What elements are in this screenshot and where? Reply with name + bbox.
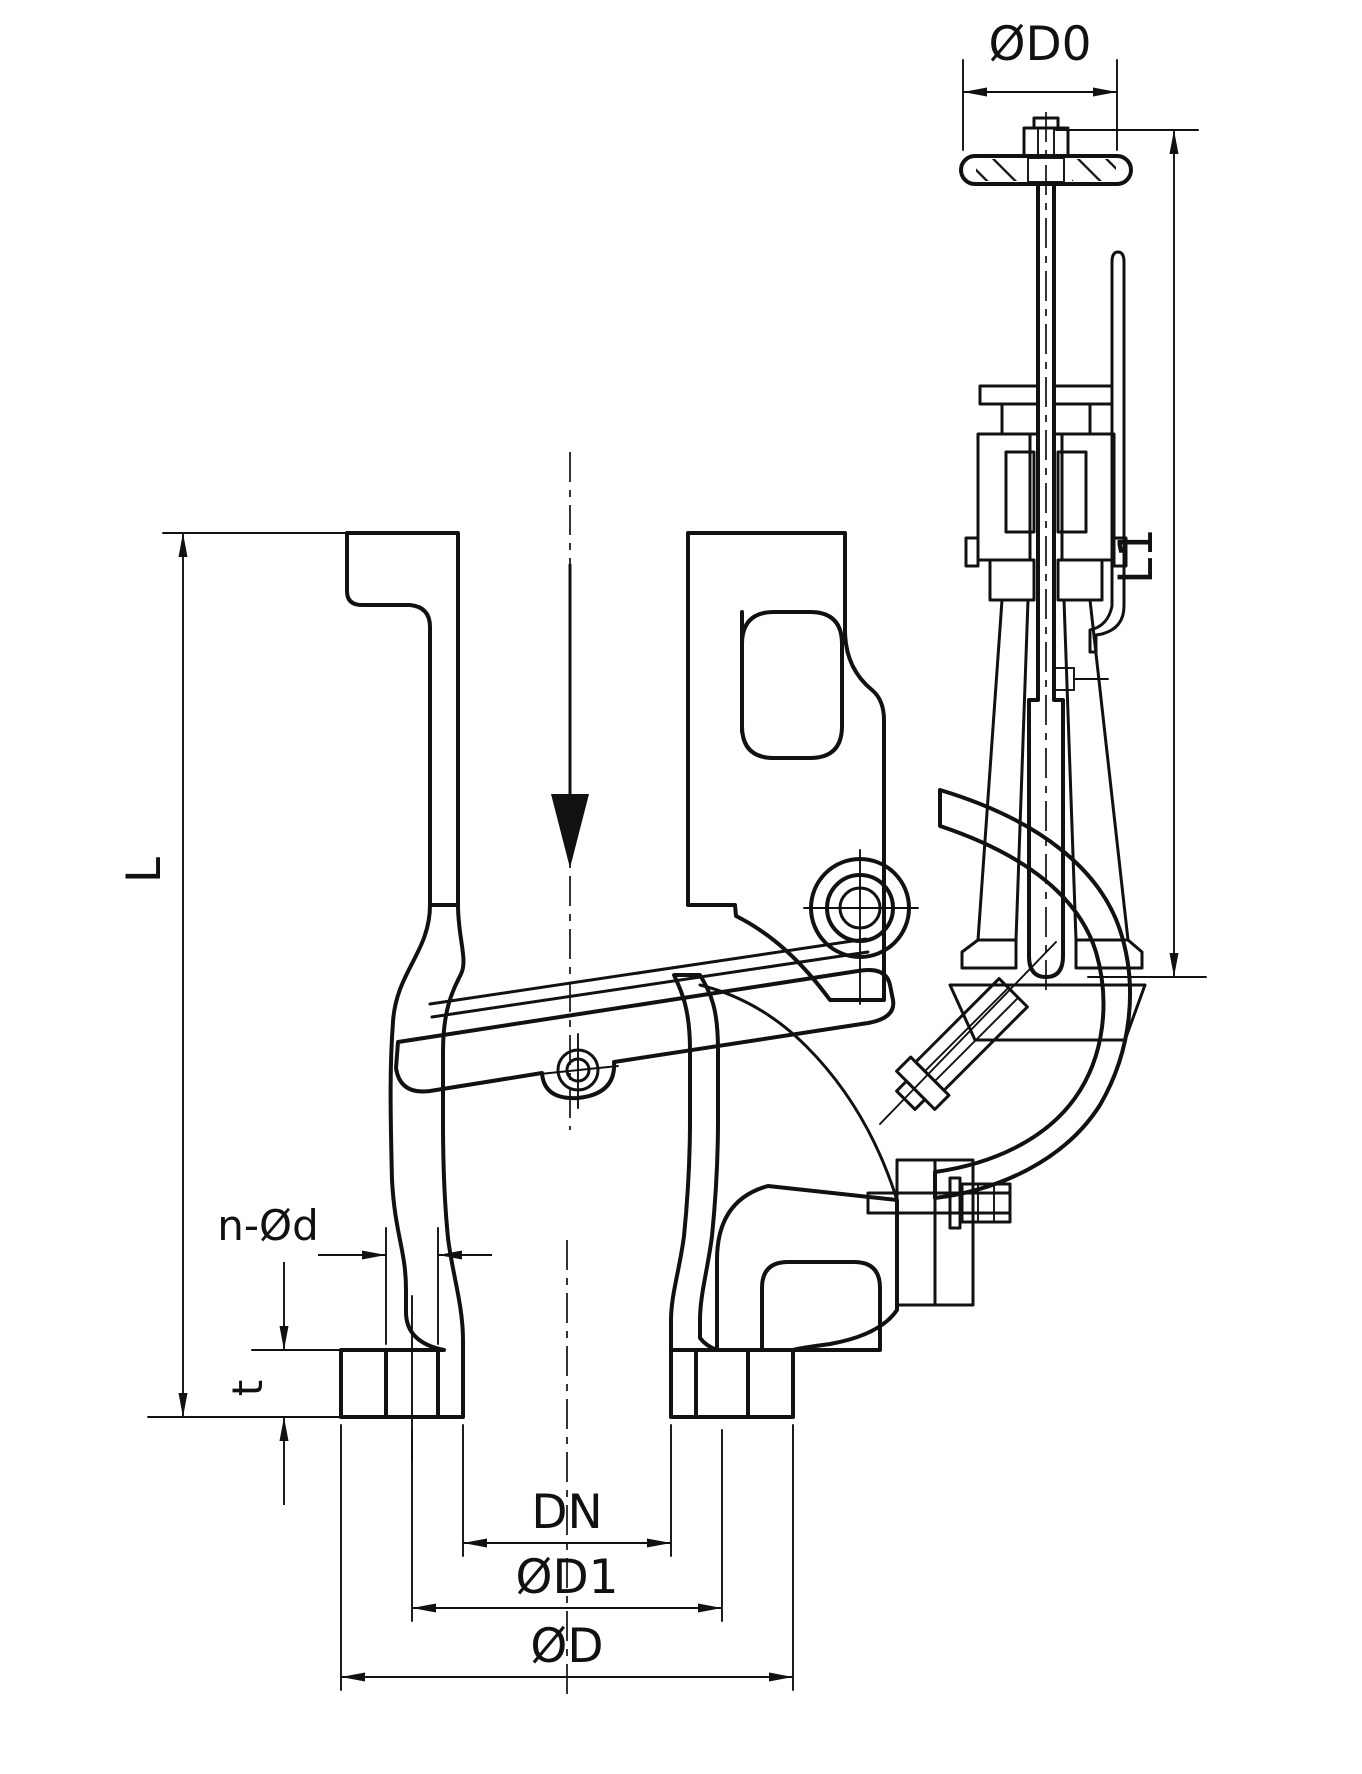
seat-line-2 bbox=[432, 952, 868, 1017]
flap-disc bbox=[396, 970, 893, 1098]
indicator-rod bbox=[1090, 252, 1124, 652]
label-d: ØD bbox=[530, 1619, 603, 1674]
cover-flange-body-side bbox=[897, 1160, 935, 1305]
gland-follower-left bbox=[1002, 404, 1038, 434]
flap-assembly bbox=[396, 850, 1056, 1124]
stuffing-tab-left bbox=[966, 538, 978, 566]
flap-stud bbox=[887, 974, 1033, 1120]
bonnet-mounting-pad bbox=[950, 985, 1145, 1040]
bonnet-block-left bbox=[990, 560, 1034, 600]
label-l: L bbox=[117, 857, 172, 883]
label-n-d: n-Ød bbox=[217, 1201, 319, 1250]
dimension-overall-height: L bbox=[117, 533, 352, 1417]
gland-follower-right bbox=[1054, 404, 1090, 434]
outlet-wall-right bbox=[671, 975, 718, 1350]
valve-technical-drawing: ØD0 L1 L n-Ød t DN bbox=[0, 0, 1362, 1774]
cover-bolt-nut bbox=[962, 1184, 1010, 1222]
inlet-flange-left bbox=[347, 533, 458, 905]
handwheel-hatch-left bbox=[976, 159, 1020, 181]
flow-arrow bbox=[551, 565, 589, 868]
outlet-boss-right bbox=[717, 1186, 897, 1350]
gland-plate-left bbox=[980, 386, 1038, 404]
bonnet-tower-left bbox=[978, 600, 1028, 940]
label-d1: ØD1 bbox=[515, 1550, 618, 1605]
handwheel-hatch-right bbox=[1072, 159, 1116, 181]
cover-bolt-washer bbox=[950, 1178, 960, 1228]
outlet-wall-left bbox=[341, 905, 463, 1417]
dimension-flange-thickness: t bbox=[223, 1262, 352, 1505]
seat-line-1 bbox=[430, 939, 866, 1004]
centerlines bbox=[567, 112, 1046, 1700]
drawing-canvas: ØD0 L1 L n-Ød t DN bbox=[0, 0, 1362, 1774]
label-l1: L1 bbox=[1109, 528, 1164, 584]
bonnet-foot-right bbox=[1076, 940, 1142, 968]
cover-flange-cover-side bbox=[935, 1160, 973, 1305]
label-dn: DN bbox=[531, 1485, 602, 1540]
bonnet-foot-left bbox=[962, 940, 1016, 968]
dimension-upper-height: L1 bbox=[1056, 130, 1206, 977]
body-dome-shell bbox=[935, 790, 1130, 1198]
chamber-floor-line bbox=[700, 985, 897, 1200]
gland-plate-right bbox=[1054, 386, 1112, 404]
flap-pivot-axis bbox=[540, 1066, 618, 1074]
flange-right bbox=[671, 1350, 793, 1417]
label-t: t bbox=[223, 1380, 272, 1396]
dimension-nominal-bore: DN bbox=[463, 1425, 671, 1556]
bonnet-block-right bbox=[1058, 560, 1102, 600]
dimension-bolt-holes: n-Ød bbox=[217, 1201, 492, 1460]
inlet-flange-right bbox=[688, 533, 884, 1000]
stem-set-screw bbox=[1054, 668, 1074, 690]
label-d0: ØD0 bbox=[988, 17, 1091, 72]
